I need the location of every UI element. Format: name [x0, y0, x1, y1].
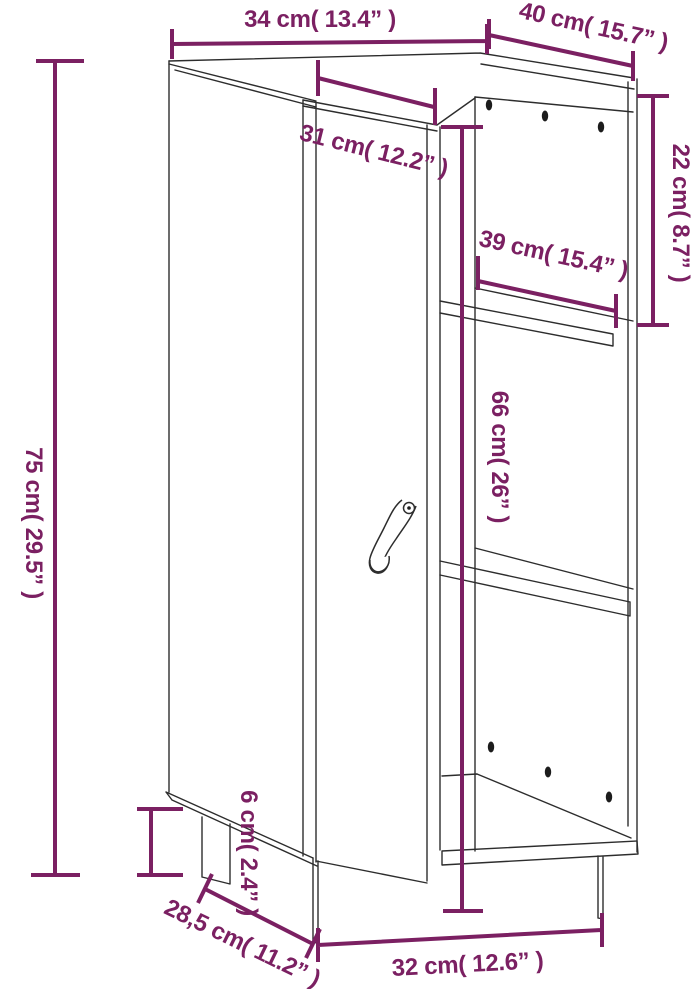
dim-label-top-compartment-height: 22 cm( 8.7” ) — [667, 144, 694, 283]
cabinet-vertical-edges — [169, 61, 637, 881]
cabinet-dimension-diagram: 34 cm( 13.4” ) 40 cm( 15.7” ) 31 cm( 12.… — [0, 0, 699, 989]
dimension-base-width: 32 cm( 12.6” ) — [318, 913, 602, 982]
upper-shelf — [440, 288, 633, 346]
dimension-top-width: 34 cm( 13.4” ) — [172, 6, 487, 59]
dim-label-side-opening-height: 66 cm( 26” ) — [486, 391, 513, 523]
screw-hole — [545, 767, 551, 778]
screw-hole — [486, 100, 492, 111]
dim-label-leg-height: 6 cm( 2.4” ) — [235, 790, 262, 916]
dimension-overall-height: 75 cm( 29.5” ) — [20, 61, 84, 875]
dimension-door-width: 31 cm( 12.2” ) — [297, 60, 451, 182]
door-handle — [369, 500, 416, 573]
dim-label-shelf-depth: 39 cm( 15.4” ) — [477, 225, 631, 284]
screw-hole — [488, 742, 494, 753]
dimension-diagram-page: 34 cm( 13.4” ) 40 cm( 15.7” ) 31 cm( 12.… — [0, 0, 699, 989]
dim-label-base-width: 32 cm( 12.6” ) — [391, 947, 544, 982]
dimension-top-compartment-height: 22 cm( 8.7” ) — [637, 96, 694, 325]
screw-hole — [606, 792, 612, 803]
screw-hole — [542, 111, 548, 122]
lower-shelf — [440, 548, 633, 616]
dim-label-top-width: 34 cm( 13.4” ) — [244, 6, 396, 33]
cabinet-top-face — [169, 53, 634, 131]
screw-hole — [598, 122, 604, 133]
dim-label-overall-height: 75 cm( 29.5” ) — [20, 447, 47, 599]
